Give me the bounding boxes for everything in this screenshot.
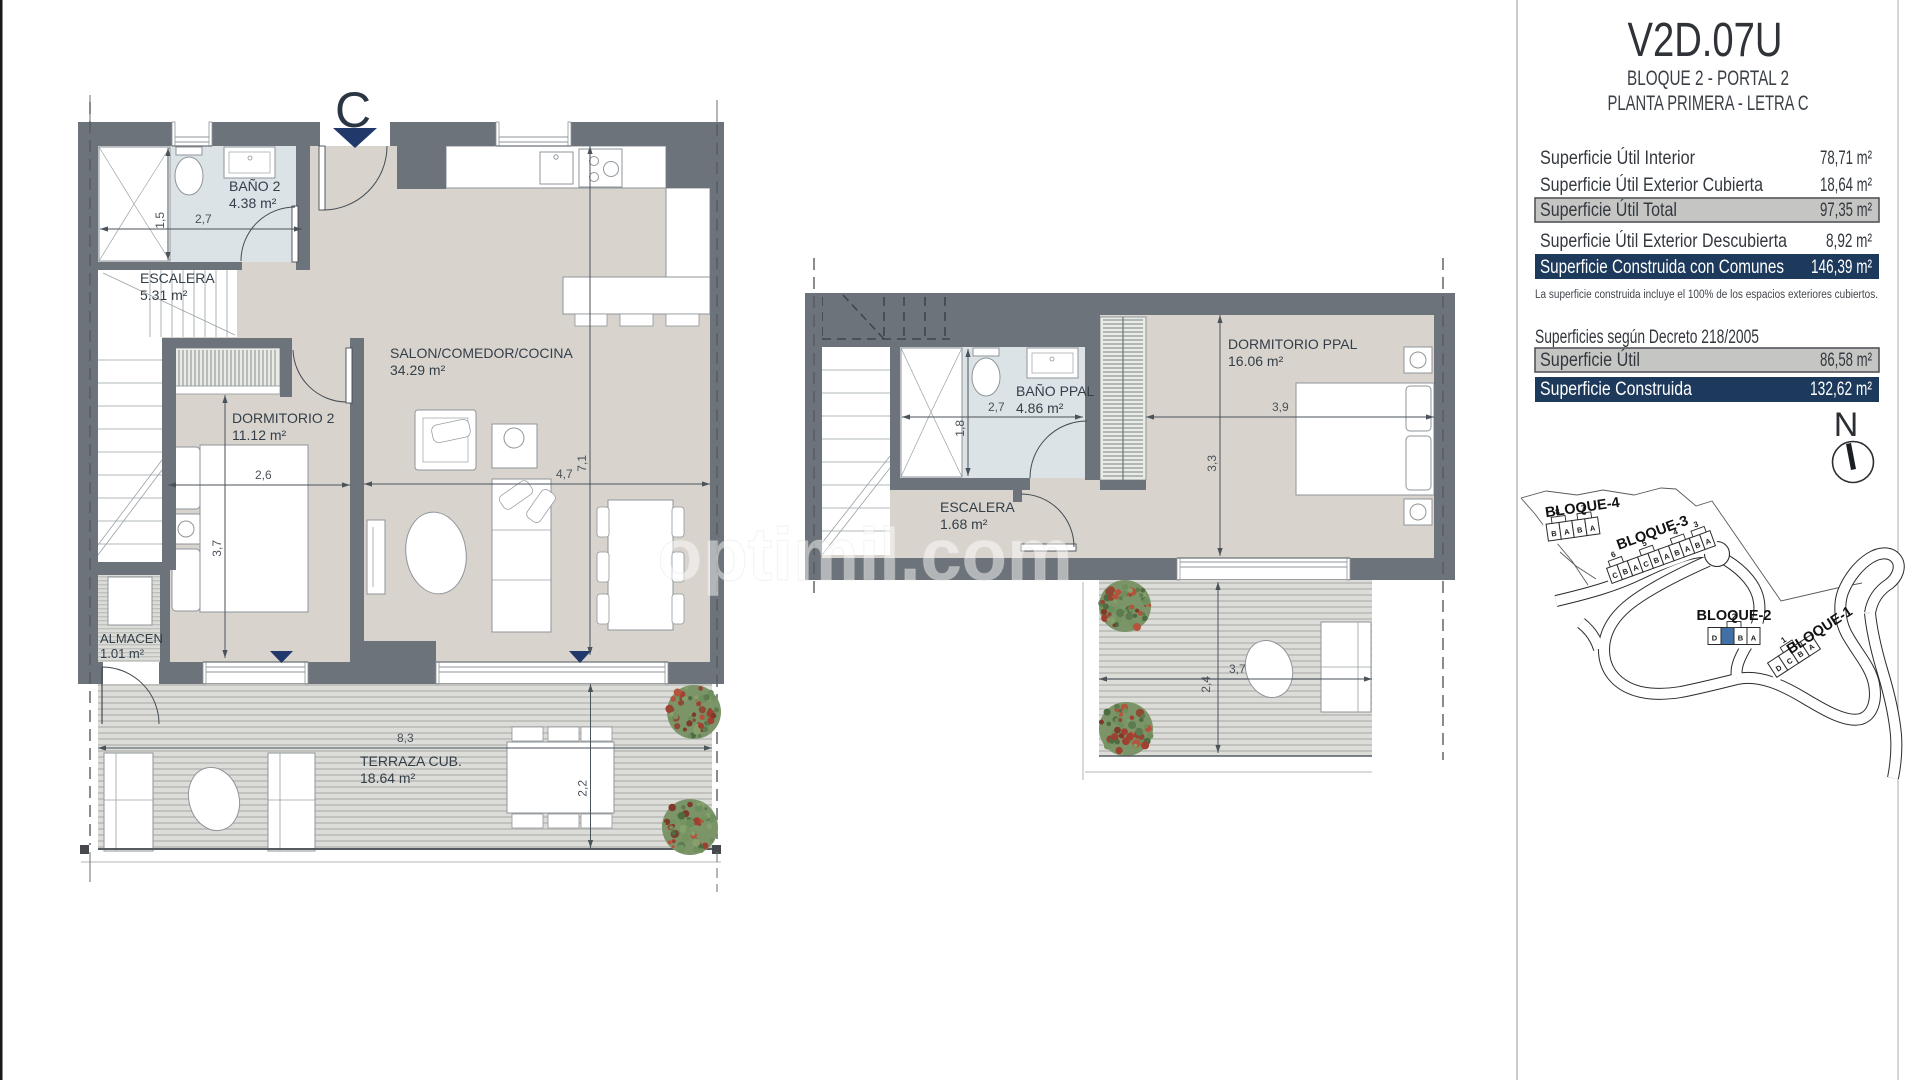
svg-text:DORMITORIO PPAL: DORMITORIO PPAL bbox=[1228, 336, 1358, 352]
svg-text:ESCALERA: ESCALERA bbox=[140, 270, 215, 286]
svg-text:7,1: 7,1 bbox=[575, 455, 589, 472]
svg-text:3,7: 3,7 bbox=[210, 540, 224, 557]
svg-text:BLOQUE 2 - PORTAL 2: BLOQUE 2 - PORTAL 2 bbox=[1627, 67, 1789, 90]
svg-text:132,62 m²: 132,62 m² bbox=[1810, 378, 1872, 400]
svg-text:8,3: 8,3 bbox=[397, 731, 414, 745]
svg-text:34.29 m²: 34.29 m² bbox=[390, 362, 446, 378]
svg-text:86,58 m²: 86,58 m² bbox=[1820, 349, 1872, 371]
svg-text:Superficies según Decreto 218/: Superficies según Decreto 218/2005 bbox=[1535, 326, 1759, 348]
svg-text:3,9: 3,9 bbox=[1272, 400, 1289, 414]
svg-text:2,7: 2,7 bbox=[195, 212, 212, 226]
svg-text:DORMITORIO 2: DORMITORIO 2 bbox=[232, 410, 335, 426]
svg-text:16.06 m²: 16.06 m² bbox=[1228, 353, 1284, 369]
svg-text:Superficie Útil Interior: Superficie Útil Interior bbox=[1540, 146, 1695, 169]
svg-text:D: D bbox=[1712, 634, 1718, 643]
svg-text:2,4: 2,4 bbox=[1199, 676, 1213, 693]
svg-text:BAÑO PPAL: BAÑO PPAL bbox=[1016, 383, 1095, 399]
svg-text:Superficie Útil: Superficie Útil bbox=[1540, 348, 1640, 371]
svg-text:3,7: 3,7 bbox=[1229, 662, 1246, 676]
svg-text:Superficie Útil Total: Superficie Útil Total bbox=[1540, 198, 1677, 221]
svg-text:optimil.com: optimil.com bbox=[657, 513, 1072, 596]
svg-text:BLOQUE-2: BLOQUE-2 bbox=[1697, 608, 1772, 624]
svg-text:BAÑO 2: BAÑO 2 bbox=[229, 178, 281, 194]
svg-text:Superficie Construida con Comu: Superficie Construida con Comunes bbox=[1540, 256, 1784, 278]
svg-text:4.38 m²: 4.38 m² bbox=[229, 195, 277, 211]
svg-text:N: N bbox=[1834, 406, 1859, 444]
svg-text:SALON/COMEDOR/COCINA: SALON/COMEDOR/COCINA bbox=[390, 345, 573, 361]
svg-text:B: B bbox=[1738, 634, 1744, 643]
svg-text:5.31 m²: 5.31 m² bbox=[140, 287, 188, 303]
svg-text:2,2: 2,2 bbox=[576, 780, 590, 797]
svg-text:18,64 m²: 18,64 m² bbox=[1820, 174, 1872, 196]
svg-text:TERRAZA CUB.: TERRAZA CUB. bbox=[360, 753, 462, 769]
svg-text:78,71 m²: 78,71 m² bbox=[1820, 147, 1872, 169]
svg-text:18.64 m²: 18.64 m² bbox=[360, 770, 416, 786]
svg-text:97,35 m²: 97,35 m² bbox=[1820, 199, 1872, 221]
svg-text:4.86 m²: 4.86 m² bbox=[1016, 400, 1064, 416]
svg-text:4,7: 4,7 bbox=[556, 467, 573, 481]
svg-text:2,7: 2,7 bbox=[988, 400, 1005, 414]
svg-text:La superficie construida inclu: La superficie construida incluye el 100%… bbox=[1535, 289, 1878, 301]
svg-text:11.12 m²: 11.12 m² bbox=[232, 427, 287, 443]
svg-text:PLANTA PRIMERA - LETRA C: PLANTA PRIMERA - LETRA C bbox=[1608, 92, 1809, 115]
svg-text:1,8: 1,8 bbox=[953, 420, 967, 437]
svg-text:Superficie Útil Exterior Descu: Superficie Útil Exterior Descubierta bbox=[1540, 229, 1787, 252]
svg-text:A: A bbox=[1751, 634, 1757, 643]
svg-text:146,39 m²: 146,39 m² bbox=[1811, 256, 1872, 278]
svg-text:V2D.07U: V2D.07U bbox=[1628, 14, 1783, 67]
svg-text:1.01 m²: 1.01 m² bbox=[100, 646, 145, 661]
svg-text:2,6: 2,6 bbox=[255, 468, 272, 482]
svg-text:3,3: 3,3 bbox=[1205, 455, 1219, 472]
svg-text:1,5: 1,5 bbox=[153, 212, 167, 229]
svg-text:Superficie Construida: Superficie Construida bbox=[1540, 378, 1692, 400]
svg-text:8,92 m²: 8,92 m² bbox=[1826, 230, 1872, 252]
svg-text:ALMACEN: ALMACEN bbox=[100, 631, 163, 646]
svg-text:Superficie Útil Exterior Cubie: Superficie Útil Exterior Cubierta bbox=[1540, 173, 1763, 196]
